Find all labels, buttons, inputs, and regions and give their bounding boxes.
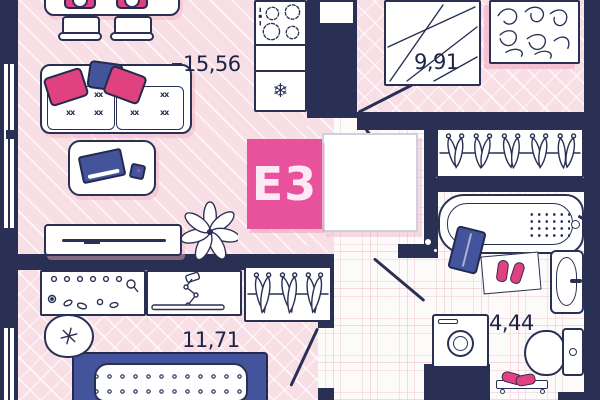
area-label-bedroom-bottom: 11,71	[182, 328, 240, 352]
cosmetics-icon	[42, 272, 142, 314]
area-label-bathroom: 4,44	[489, 311, 534, 335]
desk	[146, 270, 242, 316]
stitch-mark: xx	[66, 108, 74, 117]
wall-bathroom-corner	[398, 244, 438, 258]
sparkle-icon	[46, 316, 92, 356]
stitch-mark: xx	[160, 108, 168, 117]
area-label-bedroom-top: 9,91	[414, 50, 459, 74]
stitch-mark: xx	[160, 90, 168, 99]
dining-chair-base	[110, 32, 154, 41]
dining-chair-base	[58, 32, 102, 41]
sink-faucet-icon	[570, 279, 582, 283]
wall-right	[584, 0, 600, 400]
bed-double	[489, 0, 580, 64]
mat-wheel-icon	[500, 389, 505, 394]
bed-pillow	[94, 363, 248, 400]
bag-icon	[129, 163, 147, 181]
plant-icon	[182, 200, 238, 260]
unit-badge-extension	[322, 133, 418, 232]
floor-plan-canvas: xx xx xx xx xx xx	[0, 0, 600, 400]
snowflake-icon: ❄	[273, 80, 289, 102]
wall-bottom-right	[558, 392, 584, 400]
fridge: ❄	[254, 70, 307, 112]
sink	[550, 250, 584, 314]
stitch-mark: xx	[94, 90, 102, 99]
stove	[254, 0, 307, 46]
closet-wardrobe-small	[244, 266, 332, 322]
mat-wheel-icon	[540, 389, 545, 394]
tv-icon	[62, 239, 166, 242]
door-line-bathroom	[373, 257, 425, 301]
hangers-icon	[246, 268, 330, 320]
toilet-button-icon	[569, 348, 577, 356]
wall-bathroom-south	[424, 364, 490, 400]
tv-stand	[44, 224, 182, 256]
drain-dots	[528, 211, 570, 238]
toilet-tank	[562, 328, 584, 376]
blanket-doodle-icon	[491, 2, 576, 60]
wall-bedroom-bottom-right-2	[318, 388, 334, 400]
duct-box	[318, 0, 355, 25]
stitch-mark: xx	[94, 108, 102, 117]
kitchen-counter	[254, 44, 307, 72]
wall-bathroom-left	[424, 192, 438, 244]
washer-panel	[438, 319, 458, 324]
unit-label: E3	[252, 157, 317, 211]
bubble-icon	[433, 248, 438, 253]
window-top	[2, 64, 16, 228]
washing-machine	[432, 314, 489, 368]
desk-lamp-icon	[148, 272, 236, 312]
faucet-icon	[571, 220, 580, 229]
closet-wardrobe	[436, 128, 584, 178]
wall-closet-south	[424, 178, 584, 192]
window-divider	[6, 130, 16, 139]
dresser	[40, 270, 146, 316]
area-label-living: 15,56	[183, 52, 241, 76]
hangers-icon	[438, 130, 582, 176]
pouf-chair	[44, 314, 94, 358]
stitch-mark: xx	[130, 108, 138, 117]
stove-burners-icon	[256, 2, 305, 44]
unit-badge: E3	[247, 139, 322, 229]
window-bottom	[2, 328, 16, 400]
toilet-bowl	[524, 330, 566, 376]
bubble-icon	[424, 238, 432, 246]
